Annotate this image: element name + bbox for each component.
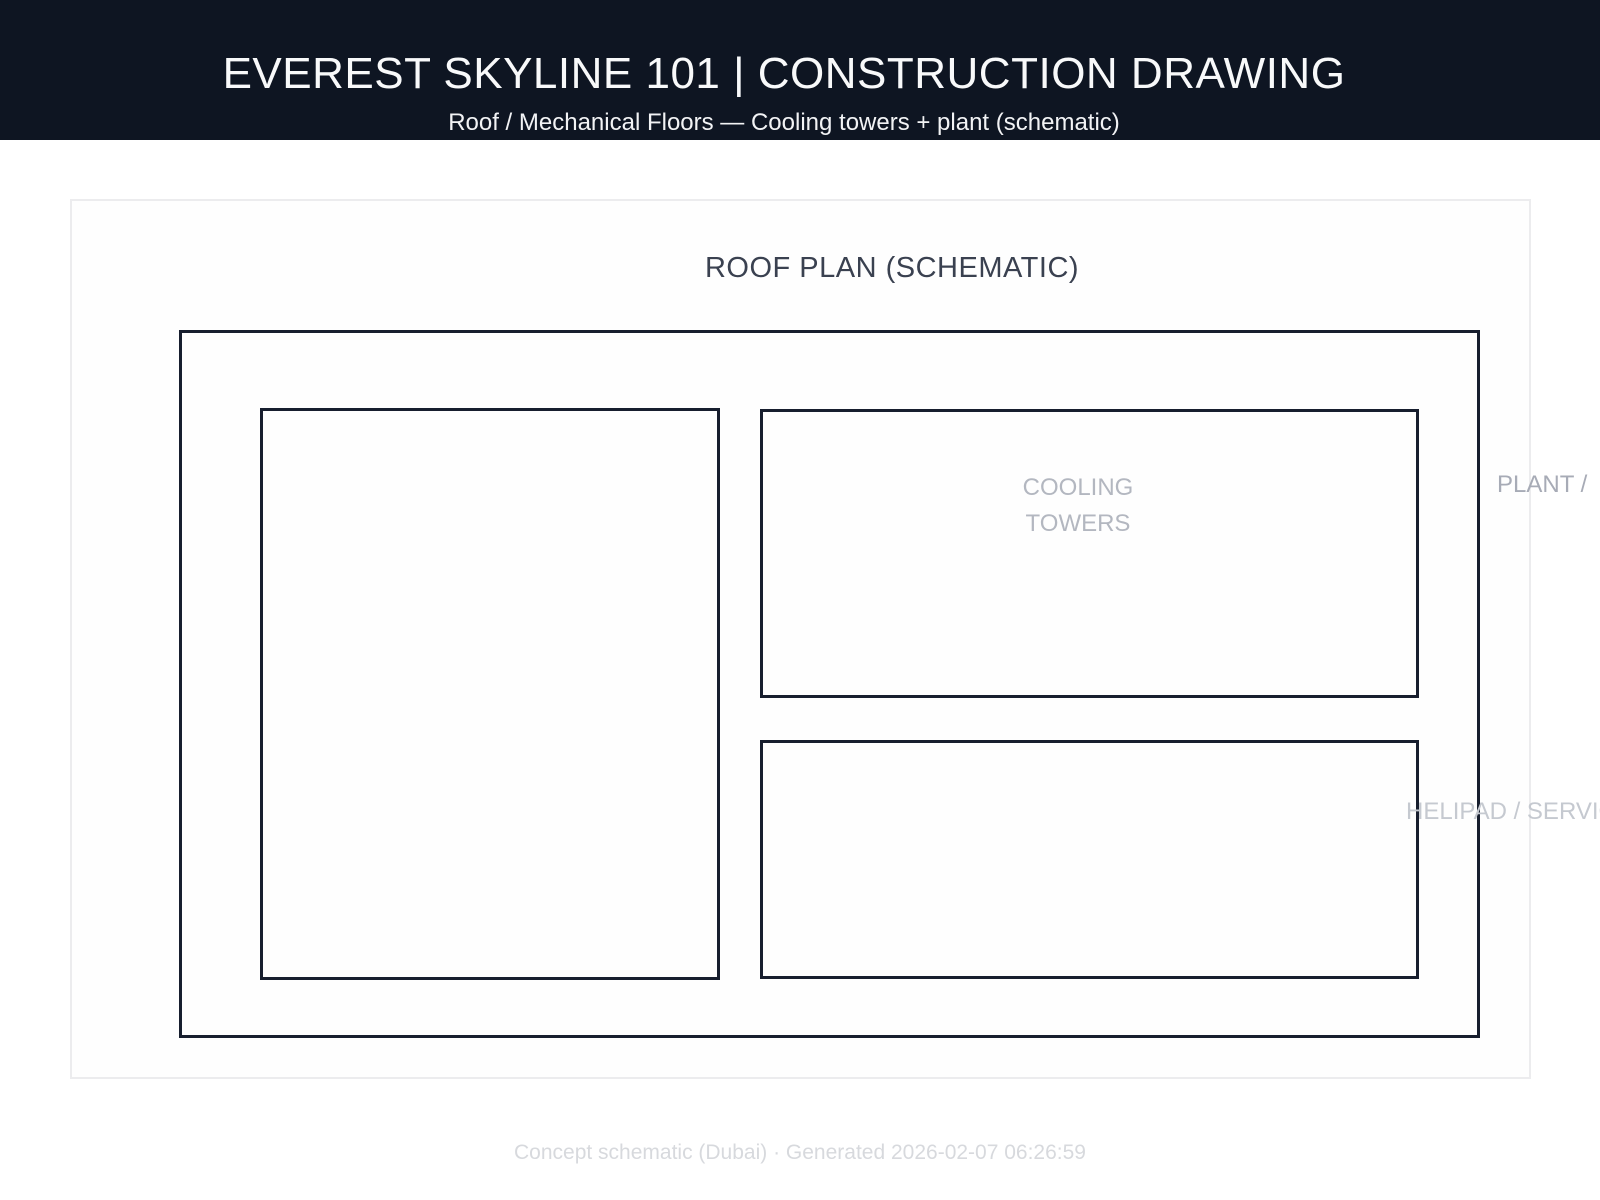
cooling-towers-label: COOLING TOWERS	[1023, 470, 1134, 542]
left-roof-zone	[260, 408, 720, 980]
helipad-service-label: HELIPAD / SERVIC	[1406, 798, 1600, 826]
cooling-towers-zone	[760, 409, 1419, 698]
footer-caption: Concept schematic (Dubai) · Generated 20…	[0, 1141, 1600, 1165]
helipad-service-zone	[760, 740, 1419, 979]
page-subtitle: Roof / Mechanical Floors — Cooling tower…	[0, 108, 1600, 138]
plant-label: PLANT /	[1497, 471, 1587, 499]
header: EVEREST SKYLINE 101 | CONSTRUCTION DRAWI…	[0, 0, 1600, 140]
page-title: EVEREST SKYLINE 101 | CONSTRUCTION DRAWI…	[0, 50, 1600, 98]
plan-title: ROOF PLAN (SCHEMATIC)	[705, 252, 1079, 285]
